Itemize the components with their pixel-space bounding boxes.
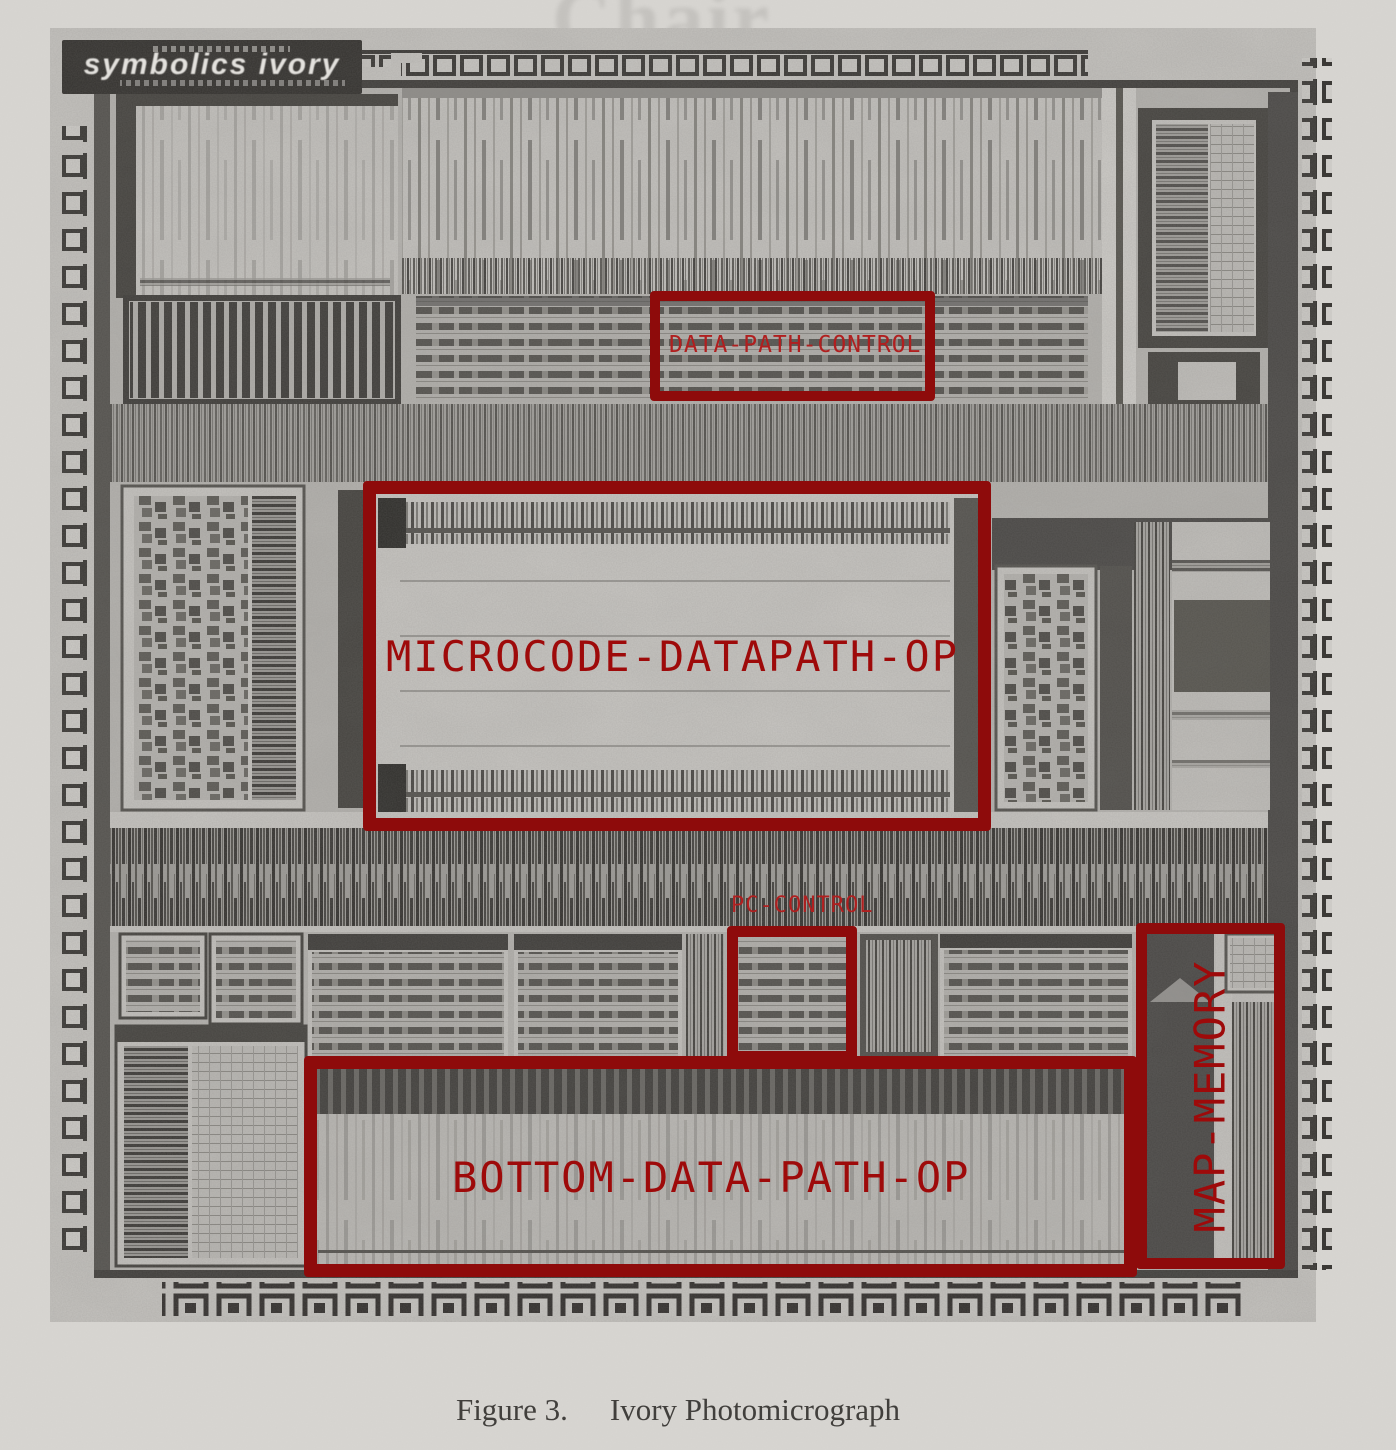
chip-logo-text: symbolics ivory bbox=[64, 48, 360, 82]
annotation-label-data-path-control: DATA-PATH-CONTROL bbox=[669, 334, 921, 357]
figure-caption: Figure 3. Ivory Photomicrograph bbox=[0, 1392, 1376, 1428]
annotation-label-pc-control: PC-CONTROL bbox=[731, 895, 873, 917]
page: { "figure": { "caption_prefix": "Figure … bbox=[0, 0, 1396, 1450]
annotation-label-bottom-data-path-op: BOTTOM-DATA-PATH-OP bbox=[452, 1157, 970, 1199]
annotation-box-map-memory bbox=[1136, 923, 1285, 1269]
figure-caption-number: Figure 3. bbox=[456, 1392, 568, 1428]
annotation-box-pc-control bbox=[727, 926, 857, 1062]
figure-caption-title: Ivory Photomicrograph bbox=[610, 1392, 900, 1428]
annotation-label-microcode-datapath-op: MICROCODE-DATAPATH-OP bbox=[386, 636, 959, 678]
scanned-figure-page: Chair bbox=[0, 0, 1396, 1450]
